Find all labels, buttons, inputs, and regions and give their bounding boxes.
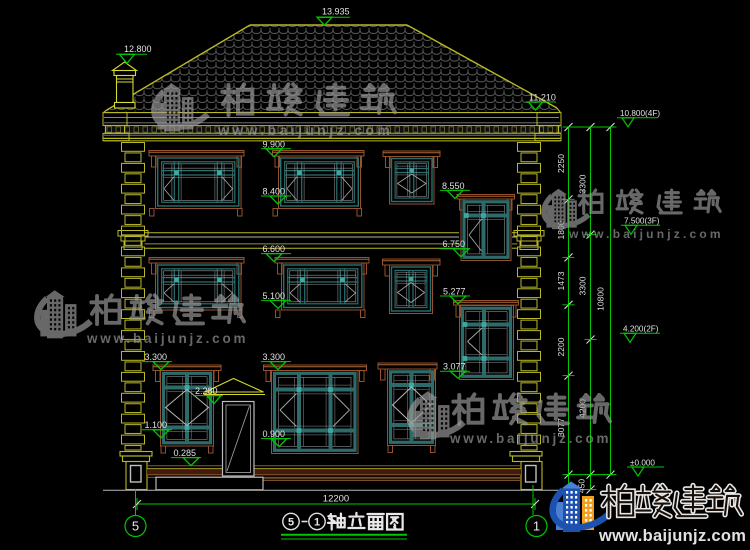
svg-text:9.900: 9.900 xyxy=(263,139,286,149)
svg-text:10.800(4F): 10.800(4F) xyxy=(620,109,660,118)
svg-text:5: 5 xyxy=(132,519,139,534)
svg-text:2200: 2200 xyxy=(556,337,566,356)
svg-text:www.baijunjz.com: www.baijunjz.com xyxy=(217,122,393,138)
svg-text:5: 5 xyxy=(288,517,294,529)
svg-text:7.500(3F): 7.500(3F) xyxy=(624,217,660,226)
svg-text:8.550: 8.550 xyxy=(442,181,465,191)
svg-text:2.280: 2.280 xyxy=(195,386,218,396)
svg-text:www.baijunjz.com: www.baijunjz.com xyxy=(449,431,611,446)
svg-text:8.400: 8.400 xyxy=(263,187,286,197)
svg-text:6.750: 6.750 xyxy=(443,239,466,249)
svg-text:±0.000: ±0.000 xyxy=(630,458,655,467)
svg-text:2250: 2250 xyxy=(556,154,566,173)
svg-text:6.600: 6.600 xyxy=(263,244,286,254)
svg-text:0.900: 0.900 xyxy=(263,429,286,439)
svg-text:4.200(2F): 4.200(2F) xyxy=(623,325,659,334)
svg-text:1: 1 xyxy=(533,519,540,534)
svg-text:www.baijunjz.com: www.baijunjz.com xyxy=(568,227,724,241)
svg-text:1473: 1473 xyxy=(556,271,566,290)
svg-text:0.285: 0.285 xyxy=(174,448,197,458)
svg-text:12.800: 12.800 xyxy=(124,44,152,54)
svg-text:10800: 10800 xyxy=(596,287,606,311)
svg-text:3300: 3300 xyxy=(578,276,588,295)
svg-text:5.277: 5.277 xyxy=(443,286,466,296)
svg-text:13.935: 13.935 xyxy=(322,7,350,17)
svg-text:www.baijunjz.com: www.baijunjz.com xyxy=(86,331,248,346)
svg-text:12200: 12200 xyxy=(323,494,349,505)
svg-text:1.100: 1.100 xyxy=(145,420,168,430)
svg-text:11.210: 11.210 xyxy=(529,93,556,103)
svg-text:3.300: 3.300 xyxy=(263,352,286,362)
svg-text:5.100: 5.100 xyxy=(263,291,286,301)
svg-text:3.300: 3.300 xyxy=(145,352,168,362)
svg-text:3.077: 3.077 xyxy=(443,362,466,372)
svg-text:www.baijunjz.com: www.baijunjz.com xyxy=(598,527,746,545)
svg-text:1: 1 xyxy=(314,517,320,529)
